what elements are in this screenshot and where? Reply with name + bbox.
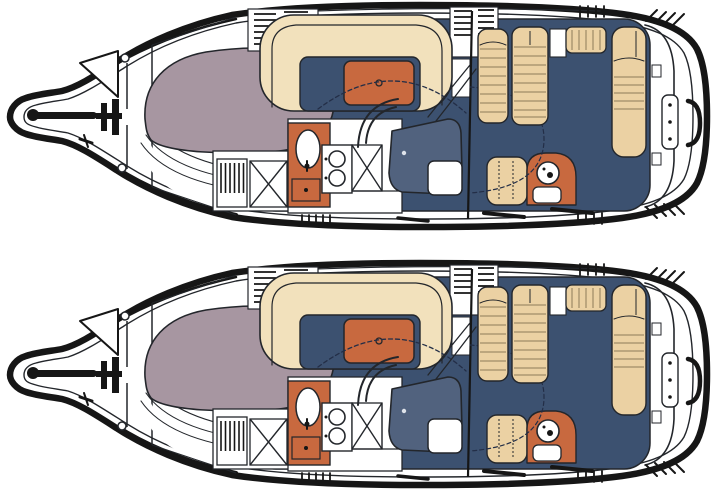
screenshot-canvas <box>0 0 715 491</box>
floorplan-top <box>10 5 707 227</box>
floorplan-bottom <box>10 263 707 485</box>
floorplans-image <box>0 0 715 491</box>
